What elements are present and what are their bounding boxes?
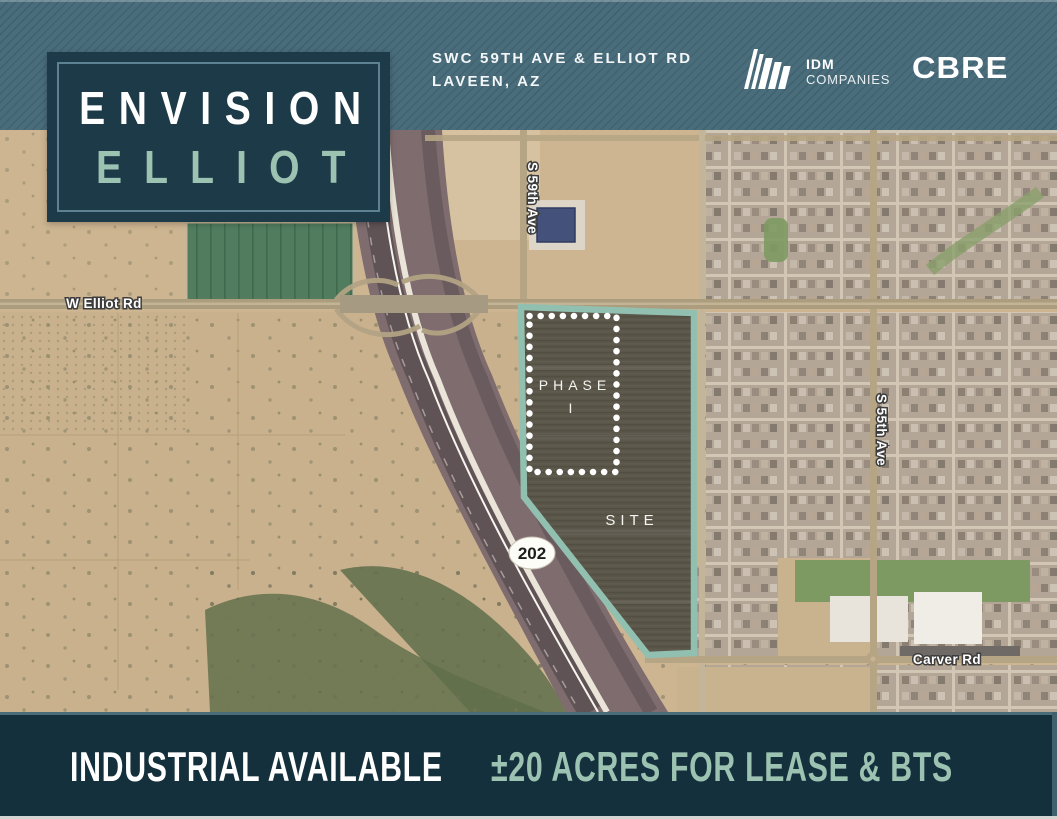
- idm-name: IDM: [806, 57, 890, 72]
- idm-bars-icon: [744, 45, 798, 89]
- project-logo-box: ENVISION ELLIOT: [47, 52, 390, 222]
- road-label-carver-rd: Carver Rd: [913, 652, 981, 667]
- project-name-line1: ENVISION: [79, 85, 375, 131]
- phase-label: PHASE: [539, 377, 611, 393]
- highway-202-number: 202: [518, 544, 546, 563]
- acreage-headline: ±20 ACRES FOR LEASE & BTS: [491, 743, 953, 791]
- property-address: SWC 59TH AVE & ELLIOT RD LAVEEN, AZ: [432, 47, 692, 93]
- idm-subname: COMPANIES: [806, 72, 890, 87]
- footer-right-wrap: ±20 ACRES FOR LEASE & BTS: [491, 743, 1057, 791]
- cbre-logo: CBRE: [912, 50, 1008, 86]
- footer-right-edge: [1052, 712, 1057, 816]
- highway-202-badge: 202: [509, 537, 555, 569]
- idm-companies-logo: IDM COMPANIES: [744, 45, 890, 89]
- page-top-edge: [0, 0, 1057, 2]
- site-label: SITE: [605, 512, 658, 529]
- road-label-w-elliot-rd: W Elliot Rd: [66, 296, 142, 311]
- footer-band: INDUSTRIAL AVAILABLE ±20 ACRES FOR LEASE…: [0, 712, 1057, 819]
- project-name-line2: ELLIOT: [96, 144, 368, 190]
- road-label-s-55th-ave: S 55th Ave: [874, 394, 889, 466]
- availability-headline: INDUSTRIAL AVAILABLE: [70, 743, 443, 791]
- road-label-s-59th-ave: S 59th Ave: [525, 162, 540, 234]
- idm-wordmark: IDM COMPANIES: [806, 57, 890, 89]
- address-line1: SWC 59TH AVE & ELLIOT RD: [432, 47, 692, 70]
- footer-left-wrap: INDUSTRIAL AVAILABLE: [0, 743, 443, 791]
- flyer-page: SWC 59TH AVE & ELLIOT RD LAVEEN, AZ IDM …: [0, 0, 1057, 819]
- address-line2: LAVEEN, AZ: [432, 70, 692, 93]
- phase-number-label: I: [569, 400, 578, 416]
